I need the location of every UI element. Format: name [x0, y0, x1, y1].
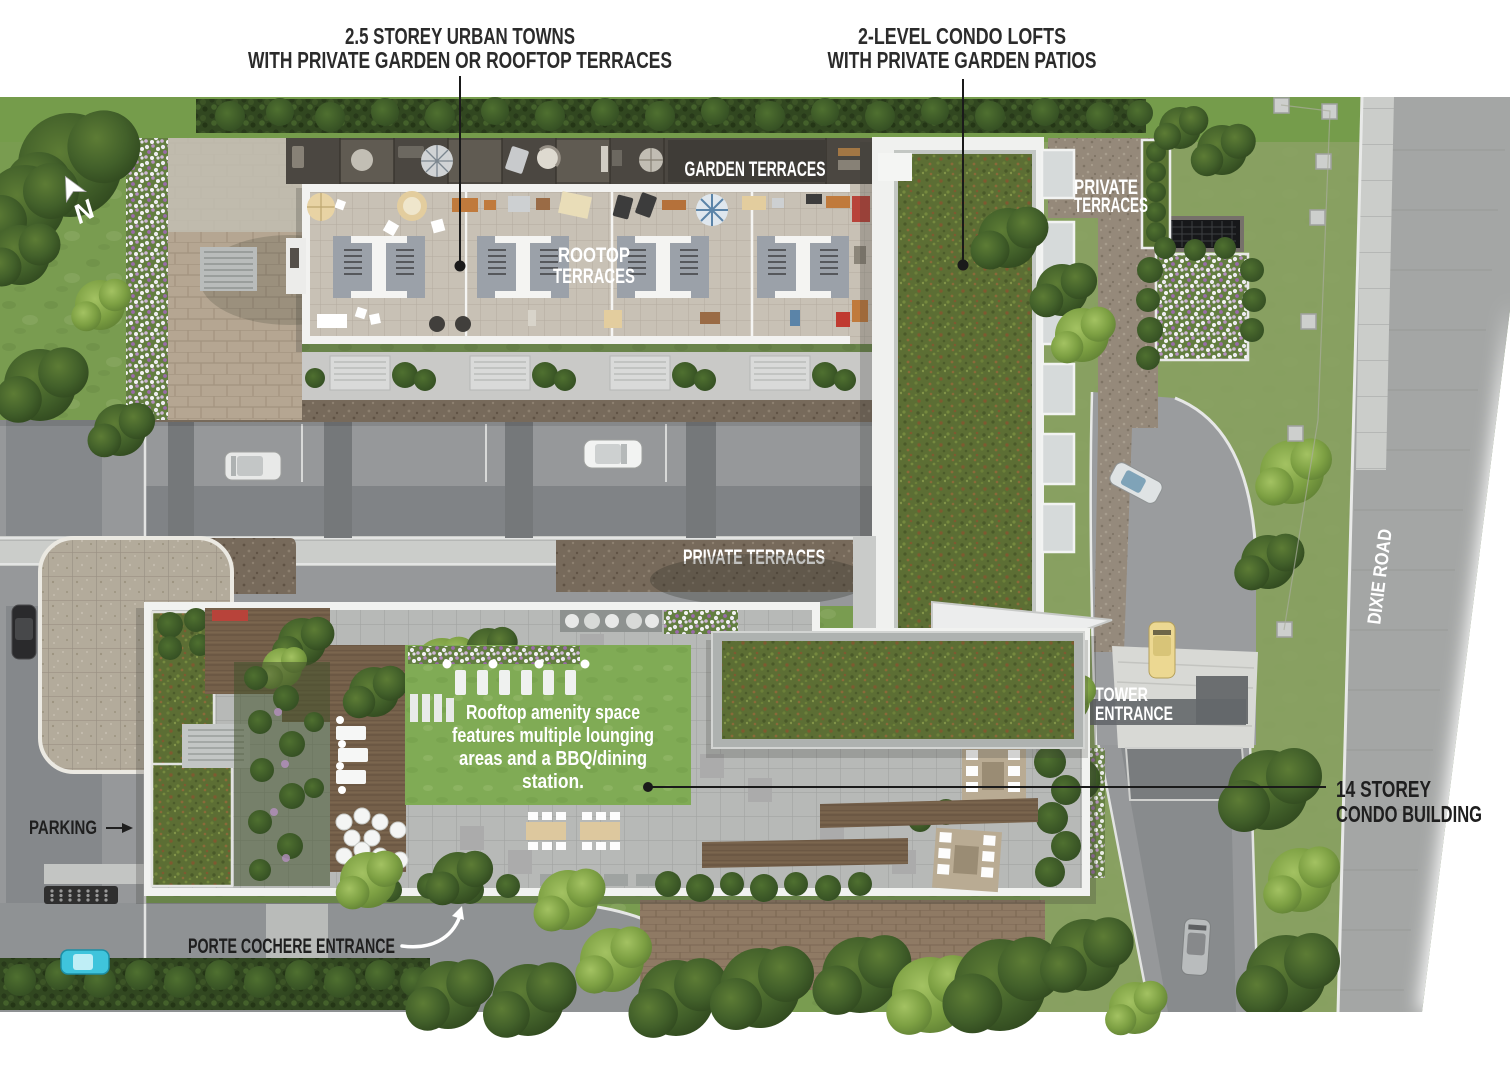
svg-text:ROOTOP: ROOTOP: [558, 244, 630, 267]
svg-text:TERRACES: TERRACES: [553, 265, 635, 288]
svg-text:GARDEN TERRACES: GARDEN TERRACES: [685, 158, 826, 181]
svg-text:14 STOREY: 14 STOREY: [1336, 776, 1431, 802]
svg-text:2.5 STOREY URBAN TOWNS: 2.5 STOREY URBAN TOWNS: [345, 23, 575, 49]
svg-text:TERRACES: TERRACES: [1074, 194, 1148, 217]
svg-text:PARKING: PARKING: [29, 817, 97, 839]
svg-text:features multiple lounging: features multiple lounging: [452, 725, 654, 747]
svg-text:CONDO BUILDING: CONDO BUILDING: [1336, 801, 1482, 827]
svg-text:PORTE COCHERE ENTRANCE: PORTE COCHERE ENTRANCE: [188, 935, 395, 958]
svg-text:areas and a BBQ/dining: areas and a BBQ/dining: [459, 748, 647, 770]
svg-text:TOWER: TOWER: [1095, 685, 1148, 706]
svg-text:Rooftop amenity space: Rooftop amenity space: [466, 702, 640, 724]
svg-text:ENTRANCE: ENTRANCE: [1095, 704, 1173, 725]
svg-text:station.: station.: [522, 771, 584, 793]
svg-text:WITH PRIVATE GARDEN PATIOS: WITH PRIVATE GARDEN PATIOS: [828, 47, 1097, 73]
svg-text:2-LEVEL CONDO LOFTS: 2-LEVEL CONDO LOFTS: [858, 23, 1066, 49]
svg-text:WITH PRIVATE GARDEN OR ROOFTOP: WITH PRIVATE GARDEN OR ROOFTOP TERRACES: [248, 47, 672, 73]
